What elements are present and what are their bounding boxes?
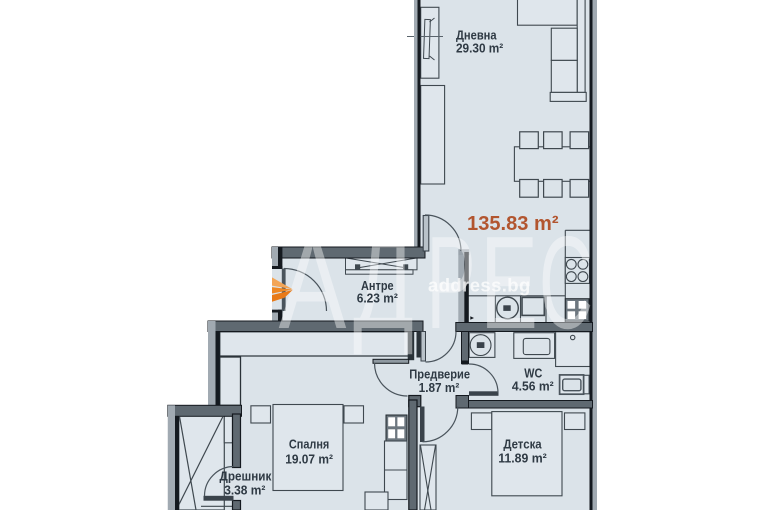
svg-text:Дрешник: Дрешник [220, 470, 272, 484]
svg-text:11.89 m²: 11.89 m² [498, 452, 547, 466]
svg-text:WC: WC [524, 366, 542, 380]
svg-text:Дневна: Дневна [456, 29, 497, 43]
svg-text:19.07 m²: 19.07 m² [285, 452, 333, 466]
svg-text:6.23 m²: 6.23 m² [357, 292, 398, 306]
svg-text:1.87 m²: 1.87 m² [419, 381, 460, 395]
svg-text:Предверие: Предверие [409, 368, 470, 382]
svg-text:29.30 m²: 29.30 m² [456, 42, 503, 56]
svg-text:address.bg: address.bg [428, 275, 531, 296]
svg-text:Детска: Детска [503, 438, 542, 452]
svg-text:135.83 m²: 135.83 m² [467, 212, 559, 235]
svg-text:А: А [279, 208, 347, 356]
svg-text:3.38 m²: 3.38 m² [224, 484, 265, 498]
svg-text:Спалня: Спалня [289, 438, 329, 452]
svg-text:4.56 m²: 4.56 m² [512, 380, 554, 394]
